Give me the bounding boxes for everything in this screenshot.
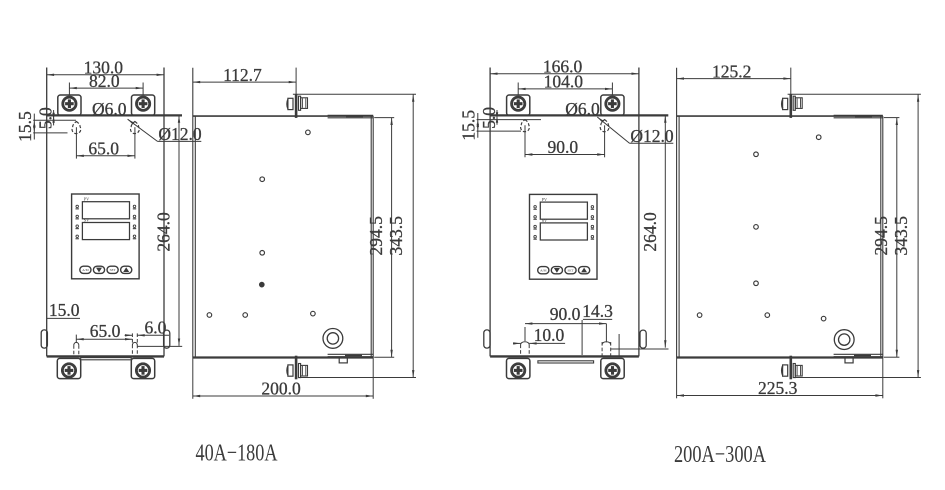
svg-text:125.2: 125.2 bbox=[712, 61, 751, 81]
svg-text:Ø6.0: Ø6.0 bbox=[565, 99, 600, 119]
svg-text:65.0: 65.0 bbox=[90, 321, 121, 341]
svg-text:264.0: 264.0 bbox=[154, 212, 174, 252]
svg-text:6.0: 6.0 bbox=[144, 317, 166, 337]
svg-text:225.3: 225.3 bbox=[758, 378, 798, 398]
svg-text:Ø6.0: Ø6.0 bbox=[92, 99, 127, 119]
svg-text:SET: SET bbox=[110, 268, 117, 272]
svg-text:294.5: 294.5 bbox=[871, 216, 891, 256]
svg-text:40A−180A: 40A−180A bbox=[196, 440, 278, 467]
svg-text:82.0: 82.0 bbox=[89, 71, 120, 91]
svg-text:PV: PV bbox=[542, 197, 547, 202]
svg-text:Ø12.0: Ø12.0 bbox=[630, 126, 674, 146]
svg-text:90.0: 90.0 bbox=[547, 137, 578, 157]
svg-text:294.5: 294.5 bbox=[366, 216, 386, 256]
svg-text:10.0: 10.0 bbox=[534, 325, 565, 345]
svg-text:14.3: 14.3 bbox=[582, 301, 613, 321]
svg-text:5.0: 5.0 bbox=[36, 107, 56, 129]
svg-text:A/M: A/M bbox=[540, 269, 546, 273]
svg-text:200A−300A: 200A−300A bbox=[674, 441, 766, 468]
svg-text:SV: SV bbox=[84, 217, 89, 222]
svg-text:343.5: 343.5 bbox=[891, 216, 911, 256]
svg-text:SET: SET bbox=[567, 269, 574, 273]
svg-text:15.5: 15.5 bbox=[15, 111, 35, 142]
svg-text:343.5: 343.5 bbox=[386, 216, 406, 256]
svg-text:5.0: 5.0 bbox=[479, 107, 499, 129]
svg-text:200.0: 200.0 bbox=[261, 379, 301, 399]
svg-text:SV: SV bbox=[542, 218, 547, 223]
svg-text:264.0: 264.0 bbox=[640, 212, 660, 252]
svg-text:15.0: 15.0 bbox=[49, 300, 80, 320]
svg-text:PV: PV bbox=[84, 197, 89, 202]
svg-text:90.0: 90.0 bbox=[550, 304, 581, 324]
svg-text:A/M: A/M bbox=[82, 268, 88, 272]
svg-text:112.7: 112.7 bbox=[223, 65, 262, 85]
svg-text:15.5: 15.5 bbox=[458, 110, 478, 141]
svg-text:104.0: 104.0 bbox=[544, 72, 584, 92]
svg-text:65.0: 65.0 bbox=[88, 138, 119, 158]
